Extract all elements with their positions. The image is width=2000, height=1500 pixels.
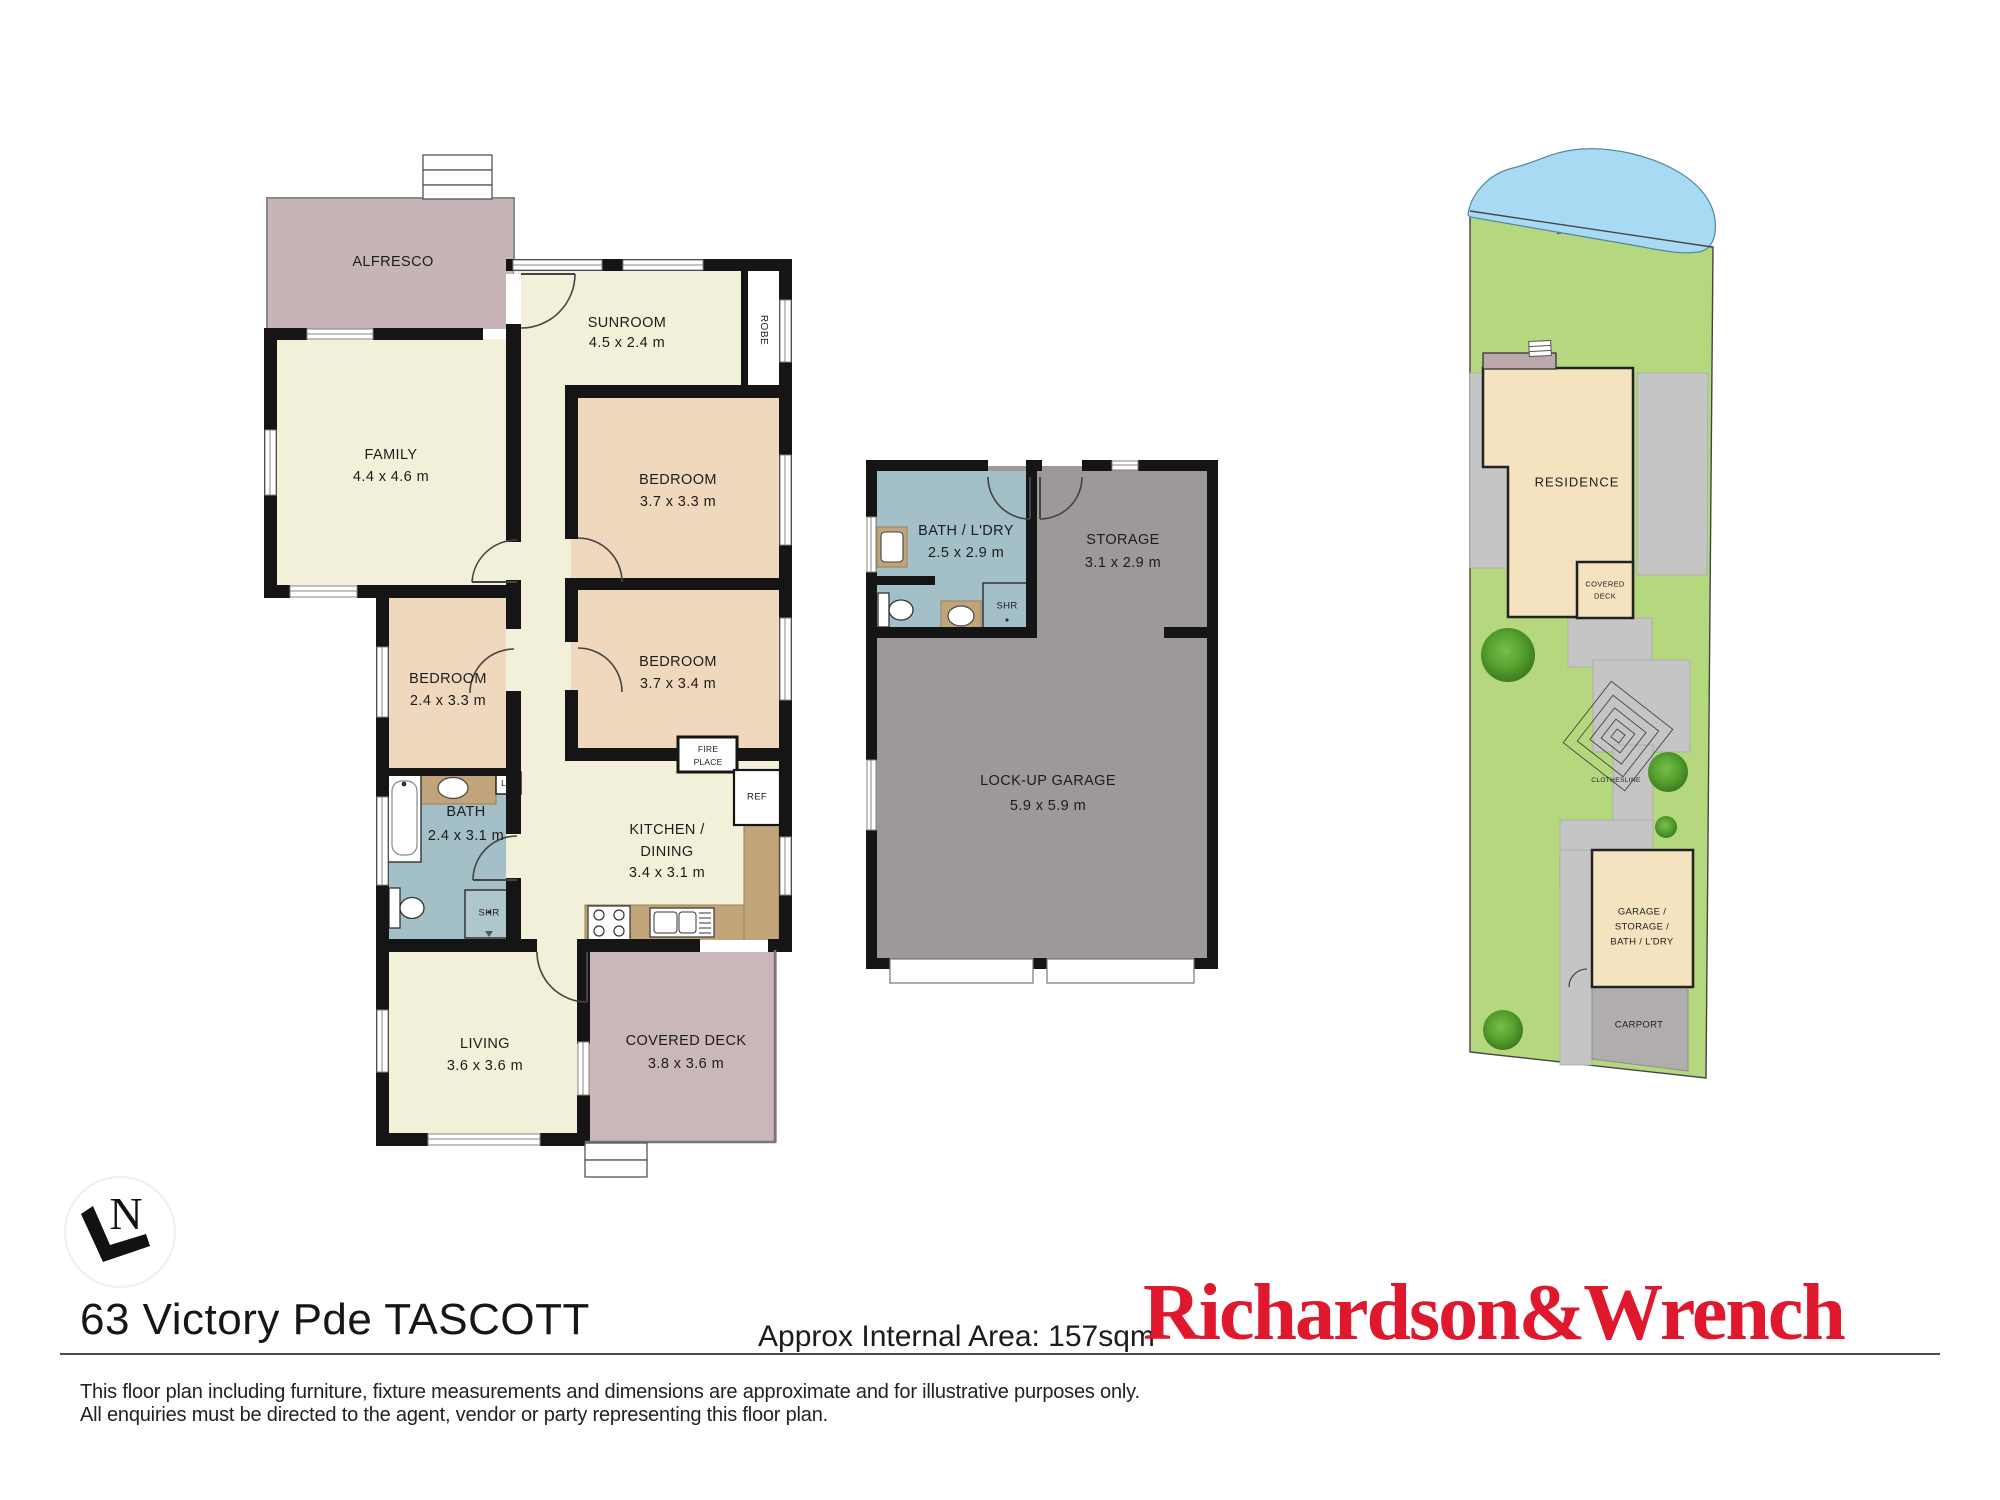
site-label-carport: CARPORT — [1615, 1020, 1663, 1030]
tree — [1648, 752, 1688, 792]
room-label-kitchen-1: KITCHEN / — [629, 823, 704, 838]
toilet-tank — [878, 593, 889, 627]
bedroom2-area — [571, 586, 786, 758]
bathtub — [388, 774, 421, 862]
room-label-living: LIVING — [460, 1037, 510, 1052]
disclaimer-line-2: All enquiries must be directed to the ag… — [80, 1404, 828, 1427]
room-label-alfresco: ALFRESCO — [352, 255, 433, 270]
room-label-bedroom1: BEDROOM — [639, 473, 717, 488]
room-dims-family: 4.4 x 4.6 m — [353, 470, 429, 485]
label-shower: SHR — [479, 908, 500, 918]
room-dims-storage: 3.1 x 2.9 m — [1085, 556, 1161, 571]
site-label-clothesline: CLOTHESLINE — [1591, 778, 1641, 785]
label-linen: LIN — [501, 779, 515, 788]
room-label-deck: COVERED DECK — [626, 1034, 747, 1049]
label-outbath-shower: SHR — [997, 601, 1018, 611]
internal-area-text: Approx Internal Area: 157sqm — [758, 1320, 1155, 1354]
room-label-bedroom2: BEDROOM — [639, 655, 717, 670]
page-title: 63 Victory Pde TASCOTT — [80, 1295, 590, 1345]
room-dims-bedroom3: 2.4 x 3.3 m — [410, 694, 486, 709]
vanity-sink — [948, 606, 974, 626]
floorplan-page: ALFRESCO SUNROOM 4.5 x 2.4 m ROBE FAMILY… — [0, 0, 2000, 1500]
room-dims-bath: 2.4 x 3.1 m — [428, 829, 504, 844]
room-label-outbath: BATH / L'DRY — [918, 524, 1014, 539]
room-dims-bedroom2: 3.7 x 3.4 m — [640, 677, 716, 692]
vanity-sink — [438, 778, 468, 799]
label-fridge: REF — [747, 792, 767, 802]
footer-divider — [60, 1353, 1940, 1355]
site-label-garage-1: GARAGE / — [1618, 907, 1666, 917]
room-label-storage: STORAGE — [1086, 533, 1159, 548]
site-label-deck-2: DECK — [1594, 592, 1616, 600]
room-label-sunroom: SUNROOM — [588, 316, 667, 331]
deck-steps — [585, 1143, 647, 1177]
room-dims-deck: 3.8 x 3.6 m — [648, 1057, 724, 1072]
room-label-robe: ROBE — [758, 315, 768, 345]
site-plan — [1468, 149, 1715, 1078]
room-dims-garage: 5.9 x 5.9 m — [1010, 799, 1086, 814]
room-label-kitchen-2: DINING — [640, 845, 693, 860]
site-garage-footprint — [1592, 850, 1693, 987]
family-area — [271, 334, 514, 592]
room-dims-kitchen: 3.4 x 3.1 m — [629, 866, 705, 881]
tree — [1655, 816, 1677, 838]
room-dims-sunroom: 4.5 x 2.4 m — [589, 336, 665, 351]
agency-logo: Richardson&Wrench — [1143, 1268, 1844, 1359]
site-label-garage-3: BATH / L'DRY — [1610, 937, 1673, 947]
site-covered-deck — [1577, 562, 1633, 618]
fireplace-niche — [678, 737, 737, 772]
toilet-bowl — [889, 600, 913, 620]
room-dims-outbath: 2.5 x 2.9 m — [928, 546, 1004, 561]
room-dims-bedroom1: 3.7 x 3.3 m — [640, 495, 716, 510]
kitchen-sink — [650, 908, 714, 937]
bedroom1-area — [571, 396, 786, 586]
room-dims-living: 3.6 x 3.6 m — [447, 1059, 523, 1074]
label-fireplace-1: FIRE — [698, 745, 718, 754]
north-letter: N — [109, 1191, 142, 1237]
alfresco-steps — [423, 155, 492, 199]
room-fills — [267, 198, 786, 1143]
disclaimer-line-1: This floor plan including furniture, fix… — [80, 1381, 1140, 1404]
site-label-deck-1: COVERED — [1585, 580, 1624, 588]
tree — [1483, 1010, 1523, 1050]
room-label-family: FAMILY — [365, 448, 418, 463]
room-label-garage: LOCK-UP GARAGE — [980, 774, 1116, 789]
room-label-bath: BATH — [446, 805, 485, 820]
stove — [588, 906, 630, 940]
label-fireplace-2: PLACE — [694, 758, 723, 767]
tree — [1481, 628, 1535, 682]
site-label-residence: RESIDENCE — [1535, 476, 1620, 489]
site-label-garage-2: STORAGE / — [1615, 922, 1669, 932]
room-label-bedroom3: BEDROOM — [409, 672, 487, 687]
